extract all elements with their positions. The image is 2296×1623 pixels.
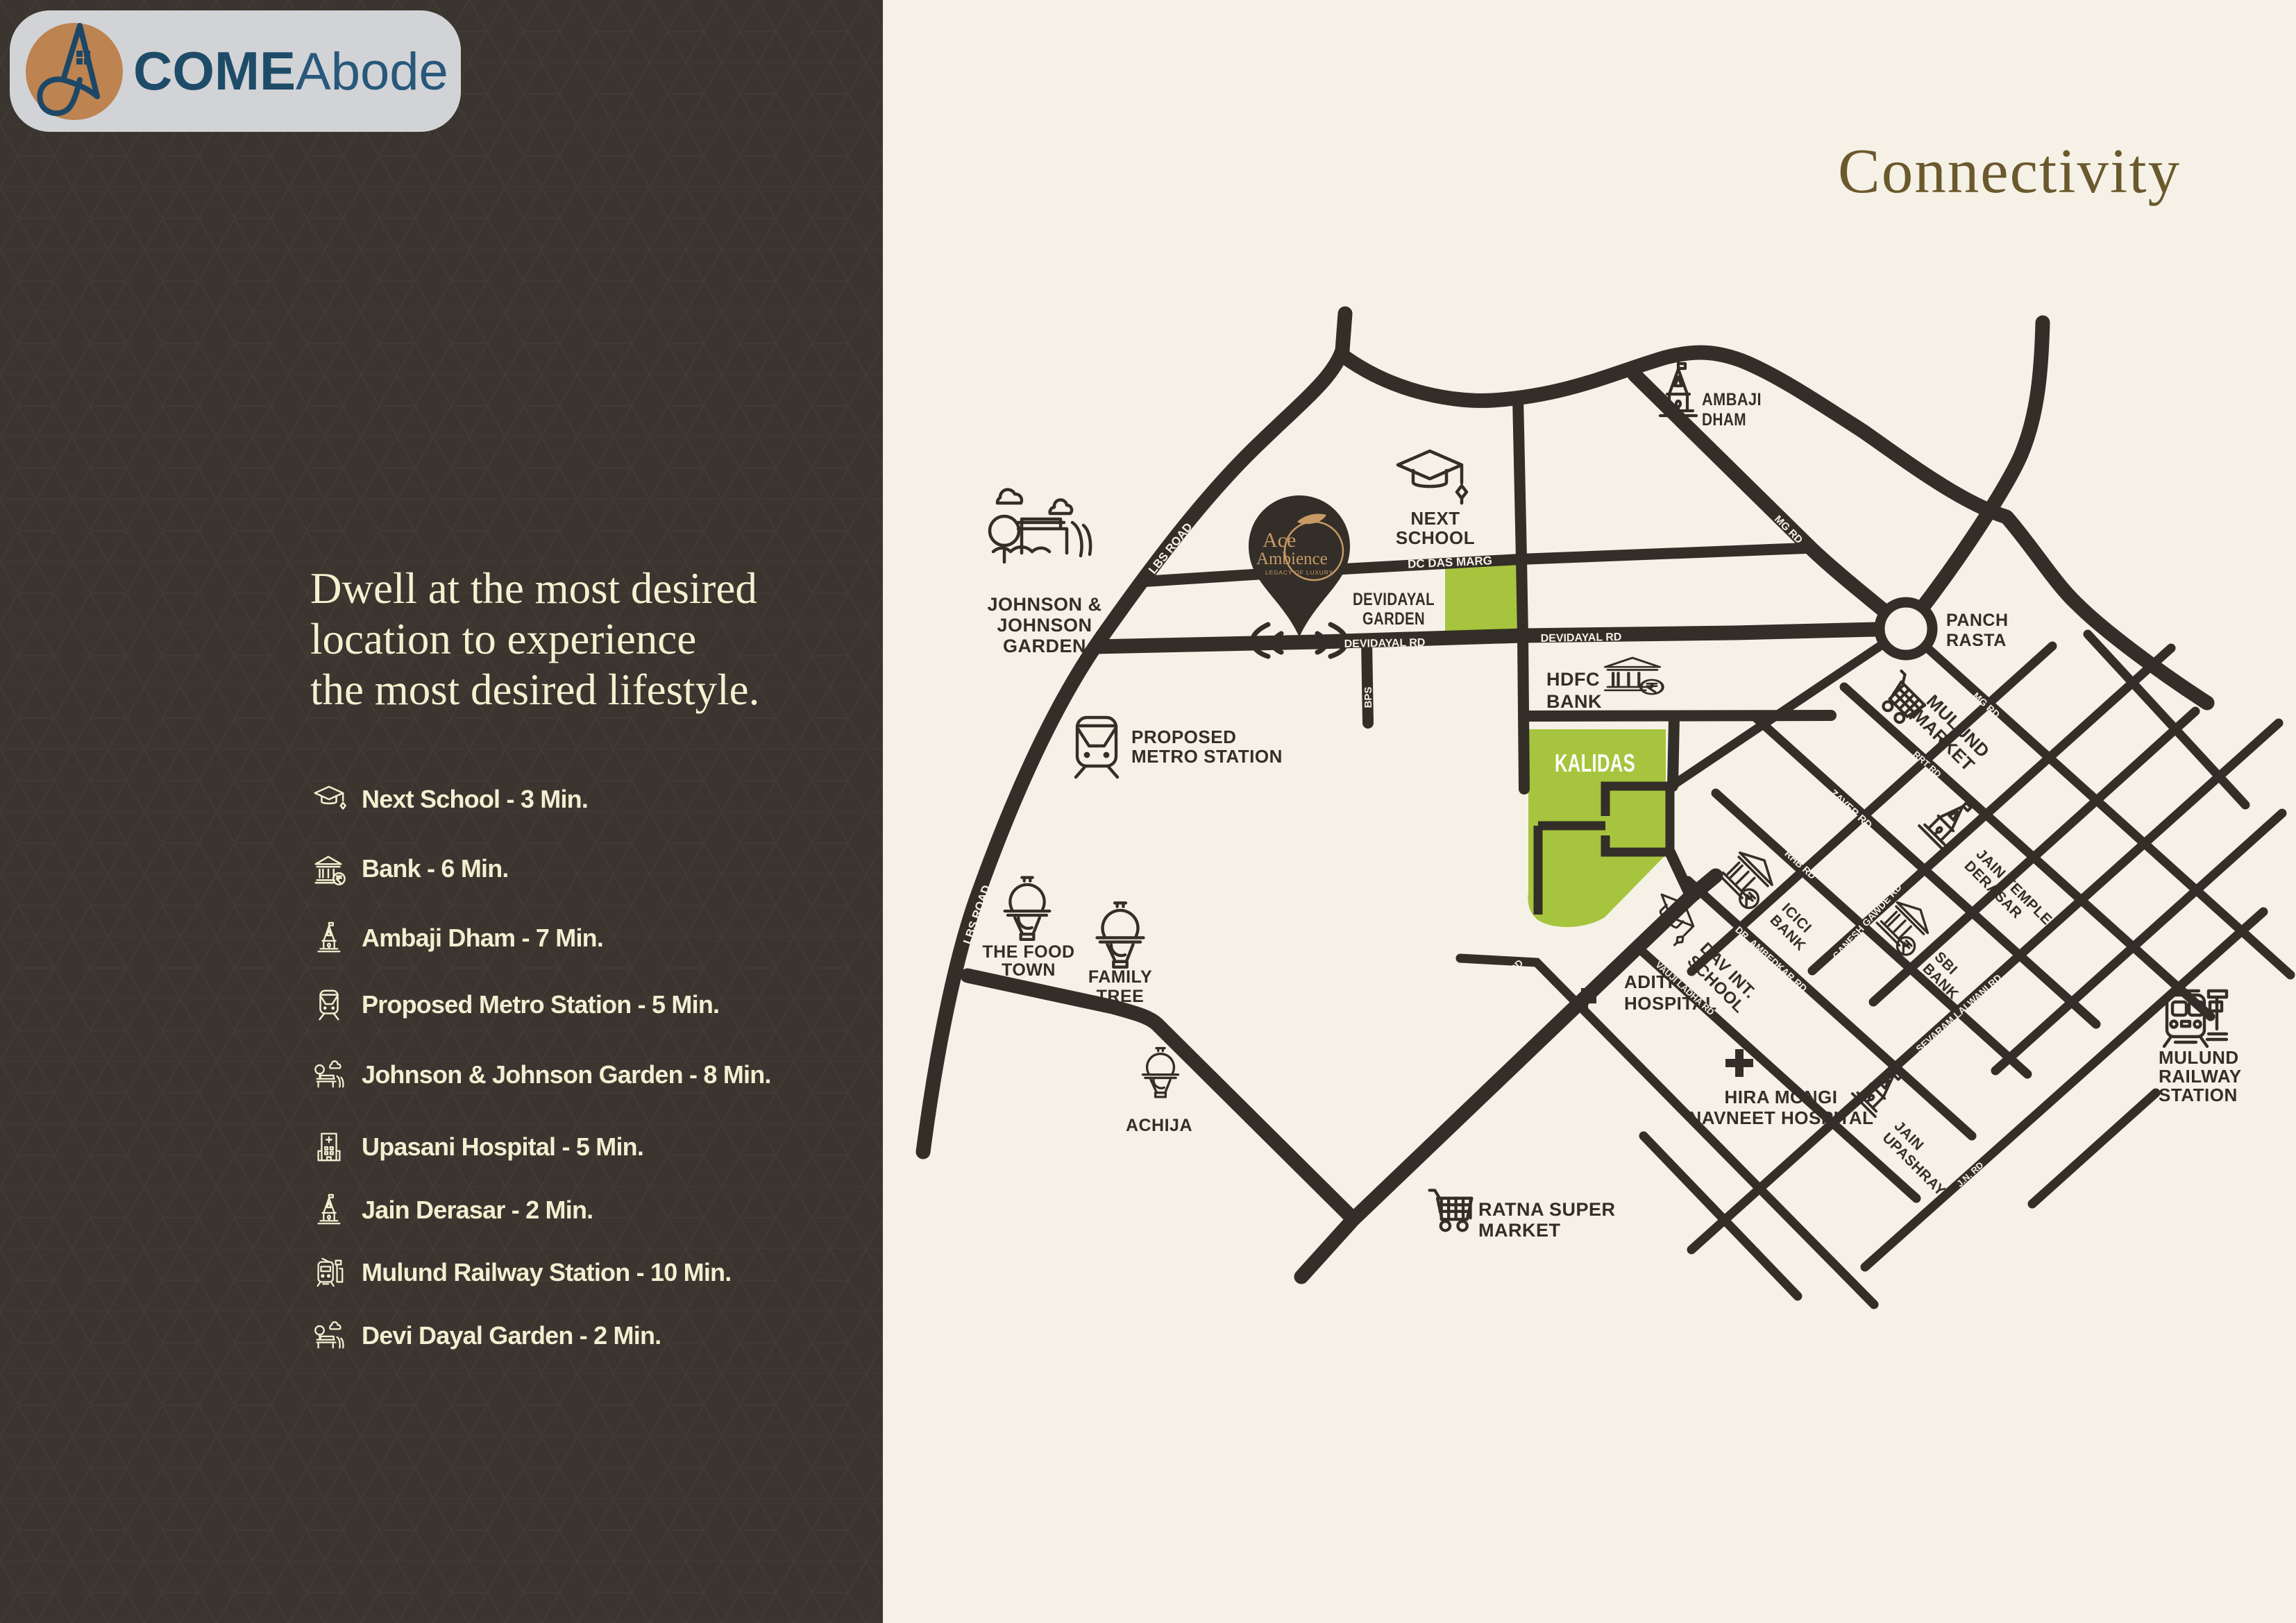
svg-text:MULUND: MULUND bbox=[2159, 1047, 2239, 1068]
svg-text:DEVIDAYAL RD: DEVIDAYAL RD bbox=[1540, 631, 1621, 645]
svg-text:DEVIDAYAL: DEVIDAYAL bbox=[1353, 590, 1435, 609]
svg-text:GARDEN: GARDEN bbox=[1362, 609, 1425, 629]
svg-text:LEGACY OF LUXURY: LEGACY OF LUXURY bbox=[1265, 569, 1333, 576]
svg-text:METRO STATION: METRO STATION bbox=[1131, 746, 1283, 767]
svg-text:JOHNSON: JOHNSON bbox=[997, 615, 1092, 636]
svg-text:BPS: BPS bbox=[1362, 687, 1374, 708]
svg-text:HIRA MONGI: HIRA MONGI bbox=[1725, 1087, 1838, 1107]
svg-text:HDFC: HDFC bbox=[1546, 669, 1600, 690]
svg-text:PURUSHOTTAM KHERAJ RD: PURUSHOTTAM KHERAJ RD bbox=[1421, 957, 1526, 1057]
svg-text:THE FOOD: THE FOOD bbox=[982, 942, 1074, 962]
svg-text:Abode: Abode bbox=[296, 42, 448, 101]
svg-text:Ace: Ace bbox=[1263, 529, 1296, 552]
svg-text:KALIDAS: KALIDAS bbox=[1555, 749, 1635, 777]
svg-text:TOWN: TOWN bbox=[1002, 960, 1056, 980]
svg-text:AMBAJI: AMBAJI bbox=[1702, 390, 1762, 409]
svg-text:COME: COME bbox=[133, 40, 296, 101]
svg-text:JOHNSON &: JOHNSON & bbox=[987, 594, 1101, 615]
svg-text:J.N. RD: J.N. RD bbox=[1955, 1159, 1985, 1189]
svg-text:DEVIDAYAL RD: DEVIDAYAL RD bbox=[1344, 637, 1425, 650]
svg-text:GARDEN: GARDEN bbox=[1003, 636, 1086, 656]
svg-text:MARKET: MARKET bbox=[1478, 1220, 1561, 1241]
svg-text:DHAM: DHAM bbox=[1702, 410, 1746, 430]
svg-text:NAVNEET HOSPITAL: NAVNEET HOSPITAL bbox=[1688, 1107, 1873, 1128]
svg-text:PANCH: PANCH bbox=[1946, 611, 2009, 630]
svg-text:PROPOSED: PROPOSED bbox=[1131, 726, 1236, 747]
svg-text:RAILWAY: RAILWAY bbox=[2159, 1066, 2242, 1087]
svg-text:FAMILY: FAMILY bbox=[1088, 967, 1152, 987]
svg-text:NEXT: NEXT bbox=[1410, 508, 1460, 529]
svg-text:BANK: BANK bbox=[1546, 691, 1602, 712]
svg-text:STATION: STATION bbox=[2159, 1085, 2238, 1105]
svg-text:RATNA SUPER: RATNA SUPER bbox=[1478, 1199, 1616, 1220]
svg-text:RASTA: RASTA bbox=[1946, 631, 2007, 650]
svg-text:TREE: TREE bbox=[1097, 987, 1145, 1006]
svg-text:Ambience: Ambience bbox=[1256, 550, 1328, 568]
svg-text:ACHIJA: ACHIJA bbox=[1126, 1116, 1192, 1135]
svg-text:SCHOOL: SCHOOL bbox=[1396, 527, 1475, 548]
svg-text:LBS ROAD: LBS ROAD bbox=[1146, 520, 1195, 577]
